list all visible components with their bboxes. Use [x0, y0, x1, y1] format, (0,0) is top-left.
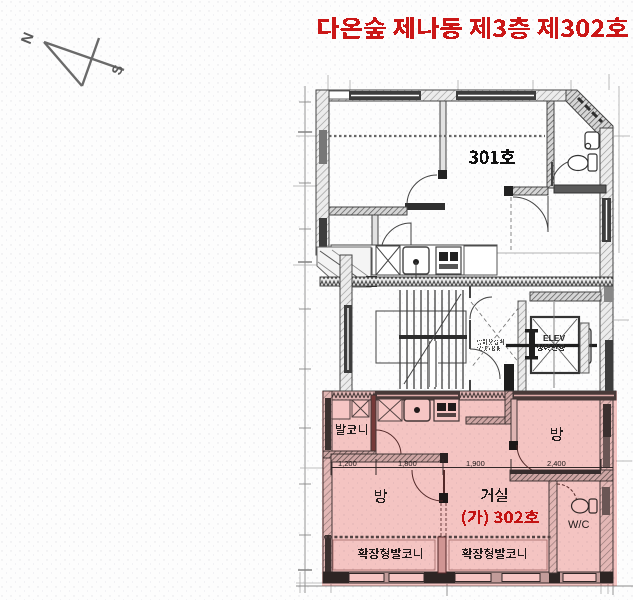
svg-text:ELEV: ELEV — [543, 333, 566, 343]
